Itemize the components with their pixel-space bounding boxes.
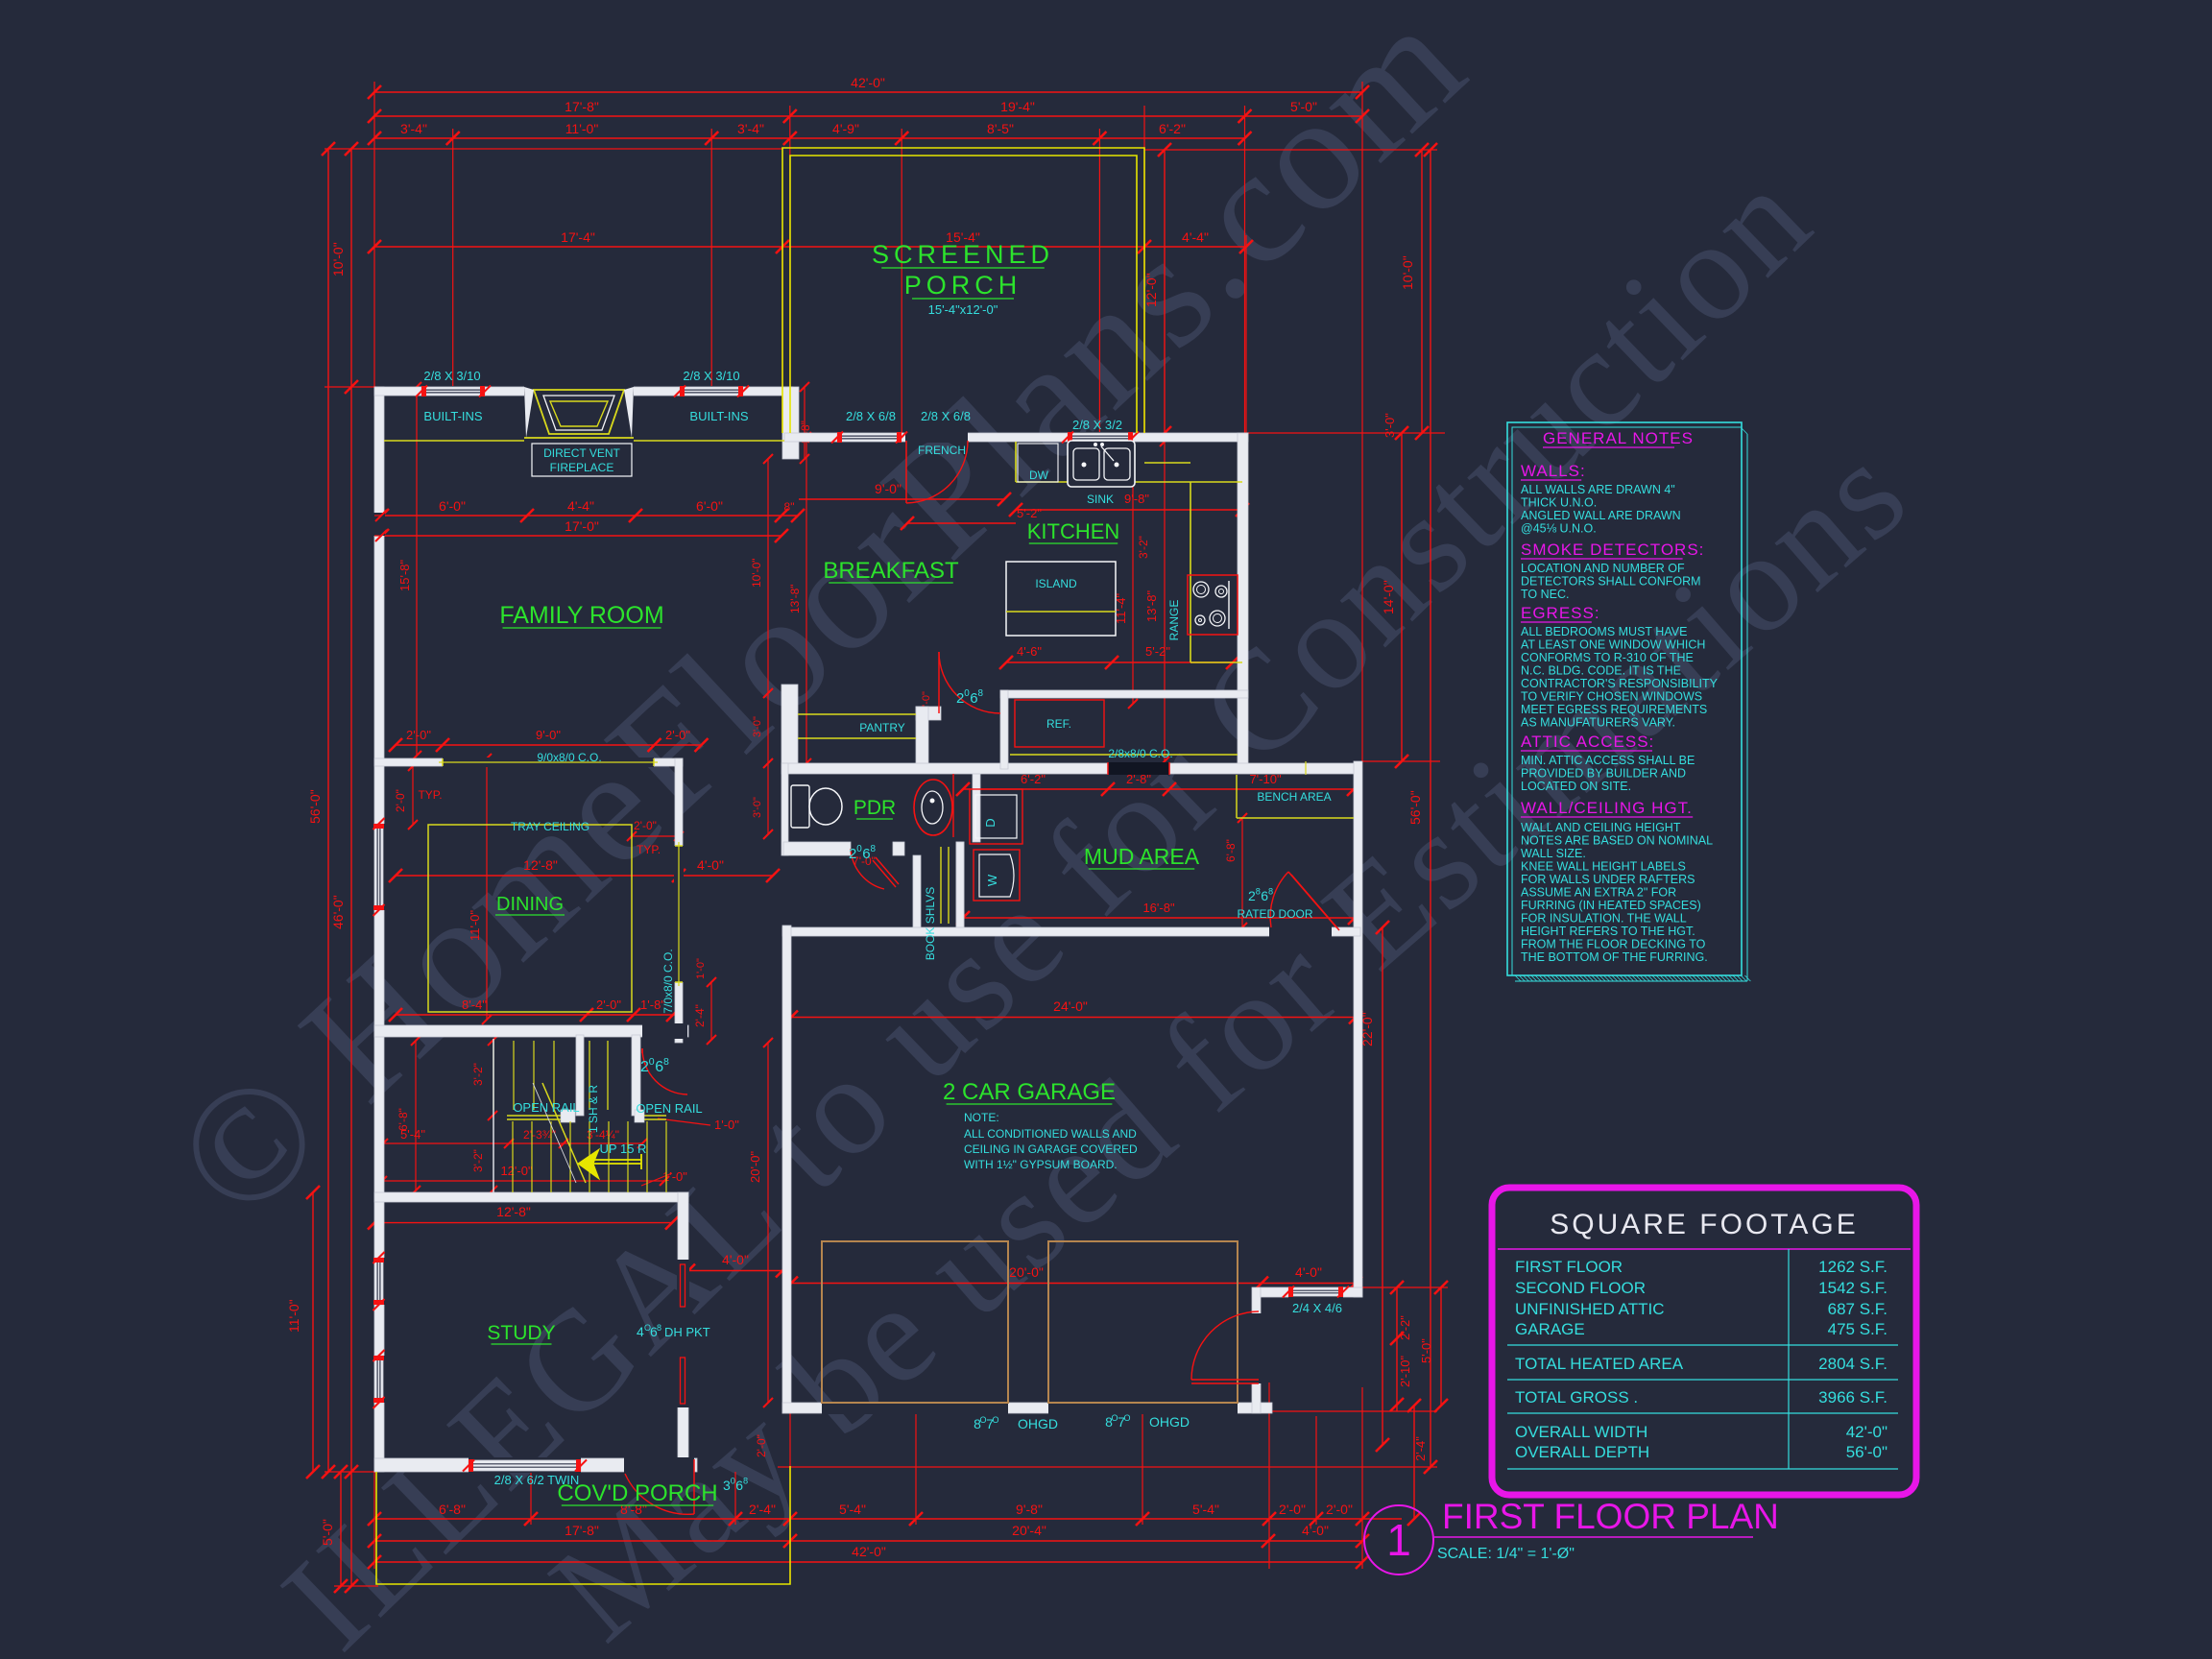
svg-text:BREAKFAST: BREAKFAST	[823, 558, 959, 584]
svg-text:2/8 X 3/10: 2/8 X 3/10	[683, 369, 739, 383]
svg-text:2'-10": 2'-10"	[1398, 1355, 1412, 1387]
svg-text:12'-0": 12'-0"	[500, 1164, 533, 1178]
svg-text:MUD AREA: MUD AREA	[1084, 844, 1200, 869]
svg-text:HEIGHT REFERS TO THE HGT.: HEIGHT REFERS TO THE HGT.	[1521, 925, 1695, 938]
svg-text:COV'D PORCH: COV'D PORCH	[557, 1480, 717, 1506]
svg-text:5'-2": 5'-2"	[1017, 506, 1042, 520]
svg-text:REF.: REF.	[1046, 717, 1071, 731]
svg-text:12'-8": 12'-8"	[523, 857, 558, 873]
svg-text:9'-8": 9'-8"	[1016, 1502, 1043, 1517]
svg-text:ISLAND: ISLAND	[1035, 577, 1077, 590]
svg-text:SCREENED: SCREENED	[872, 240, 1054, 269]
svg-text:FIRST FLOOR: FIRST FLOOR	[1515, 1258, 1623, 1276]
svg-text:3'-0": 3'-0"	[752, 716, 763, 737]
svg-text:20'-4": 20'-4"	[1012, 1523, 1046, 1538]
svg-text:SMOKE DETECTORS:: SMOKE DETECTORS:	[1521, 541, 1704, 559]
svg-text:9'-0": 9'-0"	[875, 481, 902, 496]
svg-text:4: 4	[637, 1324, 644, 1339]
svg-text:2/8 X 6/2 TWIN: 2/8 X 6/2 TWIN	[494, 1473, 580, 1487]
svg-text:PROVIDED BY BUILDER AND: PROVIDED BY BUILDER AND	[1521, 767, 1686, 781]
svg-text:24'-0": 24'-0"	[1053, 998, 1088, 1014]
svg-text:3'-0": 3'-0"	[1382, 413, 1397, 438]
svg-text:12'-0": 12'-0"	[1143, 273, 1159, 307]
svg-text:TYP.: TYP.	[637, 843, 661, 856]
svg-text:LOCATED ON SITE.: LOCATED ON SITE.	[1521, 780, 1631, 793]
svg-text:6'-8": 6'-8"	[439, 1502, 466, 1517]
svg-text:SECOND FLOOR: SECOND FLOOR	[1515, 1279, 1646, 1297]
svg-text:3'-4": 3'-4"	[737, 121, 764, 136]
svg-text:OVERALL DEPTH: OVERALL DEPTH	[1515, 1443, 1649, 1461]
svg-text:TO NEC.: TO NEC.	[1521, 588, 1569, 601]
svg-text:6: 6	[862, 846, 870, 862]
svg-text:ANGLED WALL ARE DRAWN: ANGLED WALL ARE DRAWN	[1521, 509, 1681, 522]
svg-text:WITH 1½" GYPSUM BOARD.: WITH 1½" GYPSUM BOARD.	[964, 1158, 1118, 1171]
svg-text:RANGE: RANGE	[1167, 600, 1181, 641]
svg-text:2: 2	[640, 1059, 649, 1075]
svg-text:O: O	[1123, 1413, 1130, 1423]
svg-text:FOR INSULATION. THE WALL: FOR INSULATION. THE WALL	[1521, 912, 1687, 926]
svg-text:3'-2": 3'-2"	[1137, 536, 1150, 559]
svg-text:2 CAR GARAGE: 2 CAR GARAGE	[943, 1079, 1116, 1105]
svg-text:2'-0": 2'-0"	[1279, 1502, 1306, 1517]
svg-text:CONFORMS TO R-310 OF THE: CONFORMS TO R-310 OF THE	[1521, 651, 1694, 664]
svg-text:PORCH: PORCH	[904, 271, 1022, 300]
svg-text:TRAY CEILING: TRAY CEILING	[511, 820, 589, 833]
svg-text:17'-8": 17'-8"	[565, 99, 599, 114]
svg-text:DH PKT: DH PKT	[664, 1325, 710, 1339]
svg-text:1: 1	[1386, 1515, 1411, 1565]
svg-text:6: 6	[970, 690, 977, 707]
svg-text:WALL AND CEILING HEIGHT: WALL AND CEILING HEIGHT	[1521, 821, 1681, 834]
svg-text:2: 2	[956, 690, 964, 707]
svg-text:3'-4": 3'-4"	[400, 121, 427, 136]
svg-text:FIREPLACE: FIREPLACE	[550, 461, 614, 474]
svg-text:FROM THE FLOOR DECKING TO: FROM THE FLOOR DECKING TO	[1521, 938, 1706, 951]
svg-text:8: 8	[663, 1056, 669, 1068]
svg-text:19'-4": 19'-4"	[1000, 99, 1035, 114]
svg-text:1262 S.F.: 1262 S.F.	[1818, 1258, 1887, 1276]
svg-text:MIN. ATTIC ACCESS SHALL BE: MIN. ATTIC ACCESS SHALL BE	[1521, 754, 1695, 767]
svg-text:8: 8	[657, 1323, 661, 1333]
svg-text:N.C. BLDG. CODE. IT IS THE: N.C. BLDG. CODE. IT IS THE	[1521, 664, 1681, 678]
svg-text:2'-0": 2'-0"	[755, 1434, 768, 1457]
svg-text:3966 S.F.: 3966 S.F.	[1818, 1388, 1887, 1407]
svg-text:10'-0": 10'-0"	[1400, 255, 1415, 290]
svg-text:6'-0": 6'-0"	[696, 498, 723, 514]
svg-text:ALL WALLS ARE DRAWN 4": ALL WALLS ARE DRAWN 4"	[1521, 483, 1675, 496]
svg-text:6'-8": 6'-8"	[1224, 839, 1238, 862]
svg-text:SCALE: 1/4" = 1'-Ø": SCALE: 1/4" = 1'-Ø"	[1437, 1546, 1575, 1562]
svg-text:2/4 X 4/6: 2/4 X 4/6	[1292, 1301, 1342, 1315]
svg-text:5'-4": 5'-4"	[1192, 1502, 1219, 1517]
svg-text:EGRESS:: EGRESS:	[1521, 604, 1600, 622]
svg-text:20'-0": 20'-0"	[748, 1150, 762, 1183]
svg-text:WALL SIZE.: WALL SIZE.	[1521, 847, 1586, 860]
svg-text:4'-4": 4'-4"	[1182, 229, 1209, 245]
svg-text:TOTAL GROSS .: TOTAL GROSS .	[1515, 1388, 1638, 1407]
svg-text:MEET EGRESS REQUIREMENTS: MEET EGRESS REQUIREMENTS	[1521, 703, 1707, 716]
svg-text:OPEN RAIL: OPEN RAIL	[636, 1101, 702, 1116]
svg-text:UNFINISHED ATTIC: UNFINISHED ATTIC	[1515, 1300, 1665, 1318]
svg-text:GENERAL NOTES: GENERAL NOTES	[1543, 429, 1694, 447]
svg-text:FRENCH: FRENCH	[918, 444, 966, 457]
svg-text:O: O	[992, 1415, 998, 1425]
svg-text:BUILT-INS: BUILT-INS	[423, 409, 482, 423]
svg-text:11'-0": 11'-0"	[565, 121, 599, 136]
svg-text:BENCH AREA: BENCH AREA	[1257, 790, 1331, 804]
svg-text:2: 2	[849, 846, 856, 862]
svg-text:1542 S.F.: 1542 S.F.	[1818, 1279, 1887, 1297]
svg-text:OHGD: OHGD	[1018, 1416, 1058, 1431]
svg-text:13'-8": 13'-8"	[788, 584, 802, 613]
svg-text:DIRECT VENT: DIRECT VENT	[543, 446, 620, 460]
svg-text:3'-2": 3'-2"	[471, 1063, 485, 1086]
svg-text:11'-0": 11'-0"	[286, 1299, 301, 1333]
svg-text:LOCATION AND NUMBER OF: LOCATION AND NUMBER OF	[1521, 562, 1685, 575]
svg-text:13'-8": 13'-8"	[1144, 589, 1159, 622]
svg-text:8'-5": 8'-5"	[987, 121, 1014, 136]
svg-text:BOOK SHLVS: BOOK SHLVS	[924, 887, 937, 960]
svg-text:4'-0": 4'-0"	[722, 1252, 749, 1267]
svg-text:6'-8": 6'-8"	[397, 1108, 410, 1131]
svg-text:TO VERIFY CHOSEN WINDOWS: TO VERIFY CHOSEN WINDOWS	[1521, 690, 1702, 704]
svg-text:FOR WALLS UNDER RAFTERS: FOR WALLS UNDER RAFTERS	[1521, 873, 1695, 886]
svg-text:8: 8	[743, 1477, 748, 1486]
svg-text:1'-0": 1'-0"	[714, 1118, 739, 1132]
svg-text:4'-0": 4'-0"	[1302, 1523, 1329, 1538]
svg-text:KITCHEN: KITCHEN	[1027, 519, 1120, 543]
svg-text:2'-4": 2'-4"	[693, 1004, 707, 1027]
svg-text:NOTE:: NOTE:	[964, 1111, 999, 1124]
svg-text:FAMILY ROOM: FAMILY ROOM	[499, 602, 663, 629]
svg-text:16'-8": 16'-8"	[1142, 901, 1175, 915]
svg-text:D: D	[983, 818, 998, 827]
svg-text:6'-0": 6'-0"	[439, 498, 466, 514]
svg-text:475 S.F.: 475 S.F.	[1828, 1320, 1887, 1338]
svg-text:17'-8": 17'-8"	[565, 1523, 599, 1538]
svg-text:9'-0": 9'-0"	[536, 728, 561, 742]
svg-text:56'-0": 56'-0"	[307, 789, 323, 824]
svg-text:2'-0": 2'-0"	[634, 819, 657, 832]
svg-text:2/8 X 3/10: 2/8 X 3/10	[423, 369, 480, 383]
svg-text:9'-8": 9'-8"	[1124, 492, 1149, 506]
svg-text:15'-8": 15'-8"	[397, 559, 412, 591]
svg-text:W: W	[985, 874, 999, 886]
svg-text:8: 8	[1268, 887, 1273, 897]
svg-text:2'-0": 2'-0"	[1326, 1502, 1353, 1517]
svg-text:4'-9": 4'-9"	[832, 121, 859, 136]
svg-text:TOTAL HEATED AREA: TOTAL HEATED AREA	[1515, 1355, 1684, 1373]
svg-text:2'-0": 2'-0"	[394, 789, 407, 812]
svg-text:17'-4": 17'-4"	[561, 229, 595, 245]
svg-text:2'-4": 2'-4"	[749, 1502, 776, 1517]
svg-text:5'-0": 5'-0"	[320, 1519, 335, 1546]
svg-text:0: 0	[649, 1056, 655, 1068]
svg-text:4'-6": 4'-6"	[1017, 644, 1042, 659]
svg-text:2'-4": 2'-4"	[1413, 1436, 1428, 1461]
svg-text:2/8 X 6/8: 2/8 X 6/8	[921, 409, 971, 423]
svg-text:10'-0": 10'-0"	[330, 242, 346, 276]
svg-text:THICK U.N.O.: THICK U.N.O.	[1521, 496, 1597, 510]
svg-text:TYP.: TYP.	[418, 788, 442, 802]
svg-text:2'-2": 2'-2"	[1398, 1315, 1412, 1340]
svg-text:4'-0": 4'-0"	[697, 857, 724, 873]
svg-text:ASSUME AN EXTRA 2" FOR: ASSUME AN EXTRA 2" FOR	[1521, 886, 1676, 900]
svg-text:ALL BEDROOMS MUST HAVE: ALL BEDROOMS MUST HAVE	[1521, 625, 1687, 638]
svg-text:3'-2": 3'-2"	[471, 1149, 485, 1172]
svg-text:WALLS:: WALLS:	[1521, 462, 1586, 480]
svg-text:DINING: DINING	[496, 894, 564, 915]
svg-text:8'-4": 8'-4"	[462, 998, 487, 1012]
svg-text:OHGD: OHGD	[1149, 1414, 1190, 1430]
svg-text:8: 8	[978, 688, 984, 699]
svg-text:NOTES ARE BASED ON NOMINAL: NOTES ARE BASED ON NOMINAL	[1521, 834, 1713, 848]
svg-text:CONTRACTOR'S RESPONSIBILITY: CONTRACTOR'S RESPONSIBILITY	[1521, 677, 1719, 690]
svg-text:2/8x8/0 C.O.: 2/8x8/0 C.O.	[1108, 747, 1172, 760]
svg-text:ALL CONDITIONED WALLS AND: ALL CONDITIONED WALLS AND	[964, 1127, 1137, 1141]
svg-text:9/0x8/0 C.O.: 9/0x8/0 C.O.	[537, 751, 601, 764]
svg-text:1'-0": 1'-0"	[695, 958, 707, 979]
svg-text:KNEE WALL HEIGHT LABELS: KNEE WALL HEIGHT LABELS	[1521, 860, 1686, 874]
svg-text:42'-0": 42'-0"	[1846, 1423, 1887, 1441]
svg-text:AT LEAST ONE WINDOW WHICH: AT LEAST ONE WINDOW WHICH	[1521, 638, 1705, 652]
svg-text:AS MANUFATURERS VARY.: AS MANUFATURERS VARY.	[1521, 716, 1675, 730]
svg-text:2/8 X 3/2: 2/8 X 3/2	[1072, 418, 1122, 432]
svg-text:5'-0": 5'-0"	[1290, 99, 1317, 114]
svg-text:6'-2": 6'-2"	[1159, 121, 1186, 136]
svg-text:10'-0": 10'-0"	[750, 558, 763, 588]
svg-text:6: 6	[655, 1059, 663, 1075]
svg-text:8: 8	[1256, 887, 1261, 897]
svg-text:CEILING IN GARAGE COVERED: CEILING IN GARAGE COVERED	[964, 1142, 1138, 1156]
svg-text:15'-4"x12'-0": 15'-4"x12'-0"	[928, 302, 998, 317]
svg-text:2'-0": 2'-0"	[665, 728, 690, 742]
svg-text:687 S.F.: 687 S.F.	[1828, 1300, 1887, 1318]
svg-text:STUDY: STUDY	[487, 1322, 555, 1344]
svg-text:8: 8	[871, 844, 877, 854]
svg-text:WALL/CEILING HGT.: WALL/CEILING HGT.	[1521, 799, 1693, 817]
svg-text:11'-0": 11'-0"	[468, 909, 482, 941]
svg-text:46'-0": 46'-0"	[330, 895, 346, 929]
svg-text:20'-0": 20'-0"	[1009, 1264, 1044, 1280]
svg-text:2'-0": 2'-0"	[596, 998, 621, 1012]
svg-text:3'-0": 3'-0"	[752, 797, 763, 818]
svg-text:OVERALL WIDTH: OVERALL WIDTH	[1515, 1423, 1647, 1441]
svg-text:17'-0": 17'-0"	[565, 518, 599, 534]
svg-text:1 SH & R: 1 SH & R	[587, 1085, 600, 1133]
svg-text:GARAGE: GARAGE	[1515, 1320, 1585, 1338]
svg-text:UP 15 R: UP 15 R	[600, 1142, 647, 1156]
svg-text:2'-0": 2'-0"	[406, 728, 431, 742]
svg-text:THE BOTTOM OF THE FURRING.: THE BOTTOM OF THE FURRING.	[1521, 950, 1708, 964]
svg-text:56'-0": 56'-0"	[1846, 1443, 1887, 1461]
svg-text:42'-0": 42'-0"	[852, 1544, 886, 1559]
svg-text:0: 0	[731, 1477, 735, 1486]
svg-text:56'-0": 56'-0"	[1407, 790, 1423, 825]
svg-text:SQUARE FOOTAGE: SQUARE FOOTAGE	[1550, 1209, 1858, 1240]
svg-text:DETECTORS SHALL CONFORM: DETECTORS SHALL CONFORM	[1521, 575, 1701, 589]
svg-text:7/0x8/0 C.O.: 7/0x8/0 C.O.	[661, 949, 675, 1013]
svg-text:BUILT-INS: BUILT-INS	[689, 409, 748, 423]
svg-text:4'-4": 4'-4"	[567, 498, 594, 514]
svg-text:SINK: SINK	[1087, 493, 1114, 506]
svg-text:RATED DOOR: RATED DOOR	[1237, 907, 1312, 921]
svg-text:PANTRY: PANTRY	[859, 721, 905, 734]
svg-text:2804 S.F.: 2804 S.F.	[1818, 1355, 1887, 1373]
svg-text:FURRING (IN HEATED SPACES): FURRING (IN HEATED SPACES)	[1521, 899, 1701, 912]
svg-text:ATTIC ACCESS:: ATTIC ACCESS:	[1521, 733, 1654, 751]
svg-text:PDR: PDR	[854, 797, 896, 819]
svg-text:DW: DW	[1029, 469, 1049, 482]
svg-text:2/8 X 6/8: 2/8 X 6/8	[846, 409, 896, 423]
svg-text:5'-4": 5'-4"	[839, 1502, 866, 1517]
svg-text:8": 8"	[784, 500, 795, 514]
svg-text:5'-0": 5'-0"	[1419, 1338, 1433, 1363]
svg-text:12'-8": 12'-8"	[496, 1204, 531, 1219]
svg-text:4'-0": 4'-0"	[1295, 1264, 1322, 1280]
svg-text:@45⅛ U.N.O.: @45⅛ U.N.O.	[1521, 522, 1597, 536]
svg-text:OPEN RAIL: OPEN RAIL	[513, 1100, 579, 1115]
svg-text:14'-0": 14'-0"	[1381, 580, 1396, 614]
svg-text:FIRST FLOOR PLAN: FIRST FLOOR PLAN	[1442, 1497, 1779, 1536]
svg-text:42'-0": 42'-0"	[851, 75, 885, 90]
svg-text:5'-2": 5'-2"	[1145, 644, 1170, 659]
